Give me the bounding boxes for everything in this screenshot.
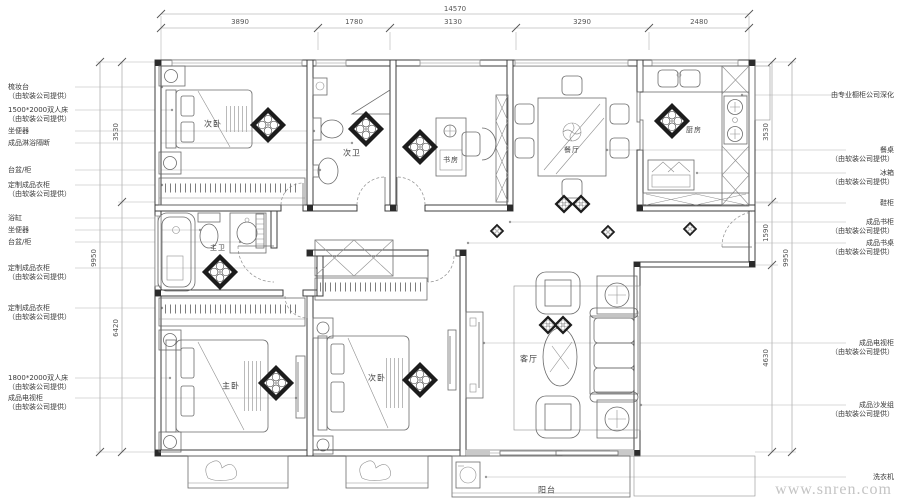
- sofa: [590, 308, 638, 402]
- annotation-sofa-set: 成品沙发组（由软装公司提供）: [831, 401, 894, 418]
- annotation-text: 成品淋浴隔断: [8, 139, 50, 148]
- annotation-bed-1800: 1800*2000双人床（由软装公司提供）: [8, 374, 71, 391]
- washing-machine: [456, 462, 480, 488]
- dim-top-4: 3290: [573, 18, 591, 26]
- bay-window: [346, 456, 428, 488]
- annotation-text: 成品电视柜: [8, 394, 71, 403]
- annotation-text: 冰箱: [831, 169, 894, 178]
- annotation-bathtub: 浴缸: [8, 214, 22, 223]
- furniture-kitchen: [643, 66, 749, 206]
- wardrobe: [159, 178, 305, 205]
- annotation-shoe-cabinet: 鞋柜: [880, 199, 894, 208]
- bookcase: [496, 95, 508, 202]
- annotation-desk: 成品书桌（由软装公司提供）: [831, 239, 894, 256]
- bed-1800: [166, 340, 268, 432]
- dim-top-2: 1780: [345, 18, 363, 26]
- annotation-wardrobe: 定制成品衣柜（由软装公司提供）: [8, 304, 71, 321]
- annotation-subtext: （由软装公司提供）: [831, 155, 894, 164]
- armchair: [536, 396, 580, 438]
- room-master-bedroom: 主卧: [222, 381, 240, 392]
- furniture-bedroom2-bottom: [313, 240, 456, 454]
- annotation-basin-cabinet: 台盆/柜: [8, 238, 31, 247]
- annotation-text: 浴缸: [8, 214, 22, 223]
- desk-chair: [462, 128, 496, 160]
- sink-bowl: [680, 70, 700, 87]
- room-master-bath: 主卫: [210, 243, 226, 253]
- balcony: [452, 456, 755, 497]
- bathtub: [158, 213, 195, 291]
- annotation-subtext: （由软装公司提供）: [8, 383, 71, 392]
- annotation-text: 定制成品衣柜: [8, 181, 71, 190]
- washer-box: [313, 78, 327, 95]
- annotation-fridge: 冰箱（由软装公司提供）: [831, 169, 894, 186]
- room-bath2: 次卫: [343, 148, 361, 159]
- dim-left-total: 9950: [90, 249, 98, 267]
- annotation-tv-cabinet: 成品电视柜（由软装公司提供）: [8, 394, 71, 411]
- furniture-living: [466, 272, 640, 438]
- furniture-dining: [515, 76, 629, 198]
- annotation-wardrobe: 定制成品衣柜（由软装公司提供）: [8, 181, 71, 198]
- annotation-text: 成品书桌: [831, 239, 894, 248]
- dim-top-1: 3890: [231, 18, 249, 26]
- annotation-text: 台盆/柜: [8, 238, 31, 247]
- coffee-table: [543, 328, 577, 386]
- annotation-text: 坐便器: [8, 226, 29, 235]
- annotation-basin-cabinet: 台盆/柜: [8, 166, 31, 175]
- room-dining: 餐厅: [564, 145, 580, 155]
- annotation-text: 台盆/柜: [8, 166, 31, 175]
- dim-top-total: 14570: [444, 5, 466, 13]
- annotation-tv-cabinet: 成品电视柜（由软装公司提供）: [831, 339, 894, 356]
- room-bedroom2-bottom: 次卧: [368, 373, 386, 384]
- annotation-subtext: （由软装公司提供）: [831, 248, 894, 257]
- side-table: [597, 400, 637, 438]
- annotation-bookcase: 成品书柜（由软装公司提供）: [831, 218, 894, 235]
- annotation-wardrobe: 定制成品衣柜（由软装公司提供）: [8, 264, 71, 281]
- counter-right: [722, 66, 749, 205]
- annotation-bed-1500: 1500*2000双人床（由软装公司提供）: [8, 106, 71, 123]
- furniture-study: [436, 95, 508, 202]
- furniture-bedroom2-top: [159, 66, 305, 205]
- room-balcony: 阳台: [538, 485, 556, 496]
- desk: [436, 118, 466, 176]
- dim-right-1: 3530: [762, 123, 770, 141]
- sink: [313, 158, 338, 184]
- annotation-text: 坐便器: [8, 127, 29, 136]
- dim-right-3: 4630: [762, 349, 770, 367]
- annotation-text: 餐桌: [831, 146, 894, 155]
- annotation-subtext: （由软装公司提供）: [831, 348, 894, 357]
- closet-upper: [315, 240, 393, 276]
- annotation-subtext: （由软装公司提供）: [8, 403, 71, 412]
- annotation-shower-screen: 成品淋浴隔断: [8, 139, 50, 148]
- neighbor-balcony: [634, 456, 755, 496]
- annotation-text: 成品沙发组: [831, 401, 894, 410]
- dressing-table: [159, 66, 185, 86]
- room-bedroom2-top: 次卧: [204, 119, 222, 130]
- dim-right-total: 9950: [782, 249, 790, 267]
- annotation-text: 由专业橱柜公司深化: [831, 91, 894, 100]
- room-study: 书房: [443, 155, 459, 165]
- finish-tags: [202, 103, 697, 401]
- annotation-subtext: （由软装公司提供）: [8, 273, 71, 282]
- tv-cabinet: [296, 356, 305, 418]
- annotation-text: 梳妆台: [8, 83, 71, 92]
- room-kitchen: 厨房: [686, 125, 702, 135]
- tv-cabinet: [466, 312, 483, 398]
- dim-left-1: 3530: [112, 123, 120, 141]
- armchair: [536, 272, 580, 314]
- annotation-text: 鞋柜: [880, 199, 894, 208]
- annotation-toilet: 坐便器: [8, 127, 29, 136]
- bay-window: [188, 456, 288, 488]
- annotation-subtext: （由软装公司提供）: [831, 178, 894, 187]
- wardrobe: [159, 298, 305, 326]
- bed: [318, 336, 409, 430]
- nightstand: [159, 152, 181, 174]
- dim-top-3: 3130: [444, 18, 462, 26]
- annotation-subtext: （由软装公司提供）: [8, 313, 71, 322]
- shoe-cabinet: [643, 193, 749, 206]
- annotation-text: 成品电视柜: [831, 339, 894, 348]
- annotation-text: 1800*2000双人床: [8, 374, 71, 383]
- sink-bowl: [658, 70, 678, 87]
- annotation-subtext: （由软装公司提供）: [8, 92, 71, 101]
- annotation-dining-table: 餐桌（由软装公司提供）: [831, 146, 894, 163]
- floorplan-canvas: 14570 3890 1780 3130 3290 2480 9950 3530…: [0, 0, 900, 500]
- dim-left-2: 6420: [112, 319, 120, 337]
- table-plant: [563, 123, 581, 141]
- annotation-dressing-table: 梳妆台（由软装公司提供）: [8, 83, 71, 100]
- tv-board: [448, 330, 456, 390]
- fridge: [648, 160, 694, 190]
- floorplan-drawing: [0, 0, 900, 500]
- room-living: 客厅: [520, 354, 538, 365]
- annotation-text: 定制成品衣柜: [8, 304, 71, 313]
- toilet: [313, 118, 343, 140]
- annotation-text: 定制成品衣柜: [8, 264, 71, 273]
- annotation-subtext: （由软装公司提供）: [8, 190, 71, 199]
- stove: [724, 96, 747, 144]
- annotation-toilet: 坐便器: [8, 226, 29, 235]
- annotation-text: 成品书柜: [831, 218, 894, 227]
- shower-corner: [352, 90, 390, 114]
- dim-right-2: 1590: [762, 224, 770, 242]
- dim-top-5: 2480: [690, 18, 708, 26]
- annotation-subtext: （由软装公司提供）: [8, 115, 71, 124]
- annotation-cabinet-note: 由专业橱柜公司深化: [831, 91, 894, 100]
- annotation-subtext: （由软装公司提供）: [831, 227, 894, 236]
- closet-hangers: [315, 278, 427, 300]
- annotation-subtext: （由软装公司提供）: [831, 410, 894, 419]
- annotation-text: 1500*2000双人床: [8, 106, 71, 115]
- watermark: www.snren.com: [775, 481, 892, 499]
